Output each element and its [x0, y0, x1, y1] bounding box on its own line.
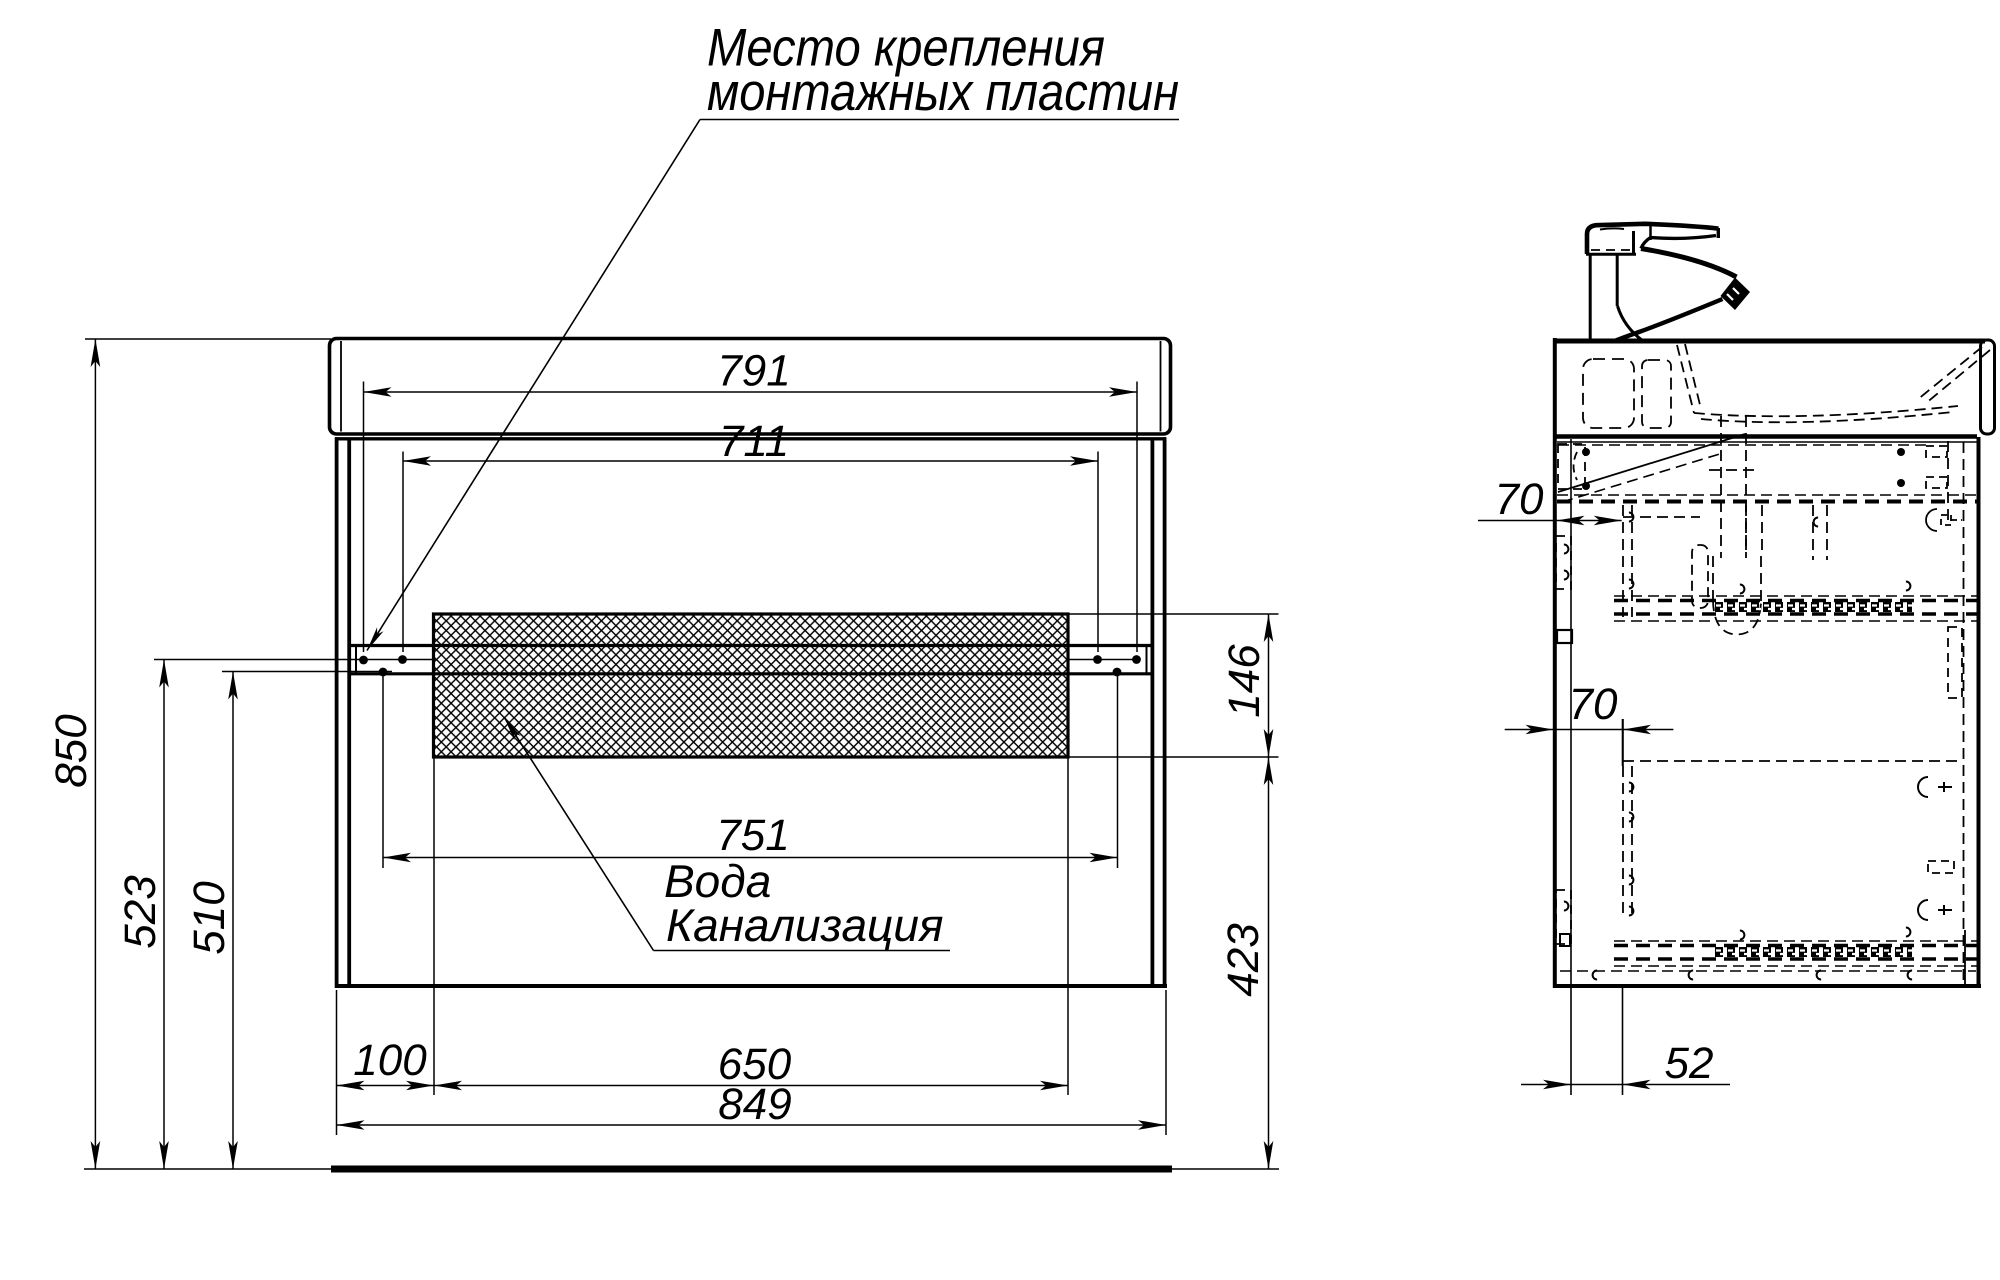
- svg-text:монтажных пластин: монтажных пластин: [707, 63, 1179, 122]
- svg-text:711: 711: [719, 417, 789, 466]
- svg-text:510: 510: [185, 881, 234, 955]
- svg-text:146: 146: [1220, 644, 1269, 718]
- svg-text:70: 70: [1495, 475, 1544, 524]
- svg-text:Канализация: Канализация: [666, 899, 944, 951]
- svg-text:52: 52: [1665, 1039, 1714, 1088]
- svg-text:850: 850: [47, 714, 96, 788]
- svg-text:751: 751: [716, 811, 789, 860]
- svg-text:423: 423: [1219, 923, 1268, 997]
- svg-text:791: 791: [717, 347, 790, 396]
- svg-text:100: 100: [353, 1036, 427, 1085]
- svg-text:70: 70: [1569, 680, 1618, 729]
- svg-text:523: 523: [116, 875, 165, 949]
- svg-text:849: 849: [718, 1080, 791, 1129]
